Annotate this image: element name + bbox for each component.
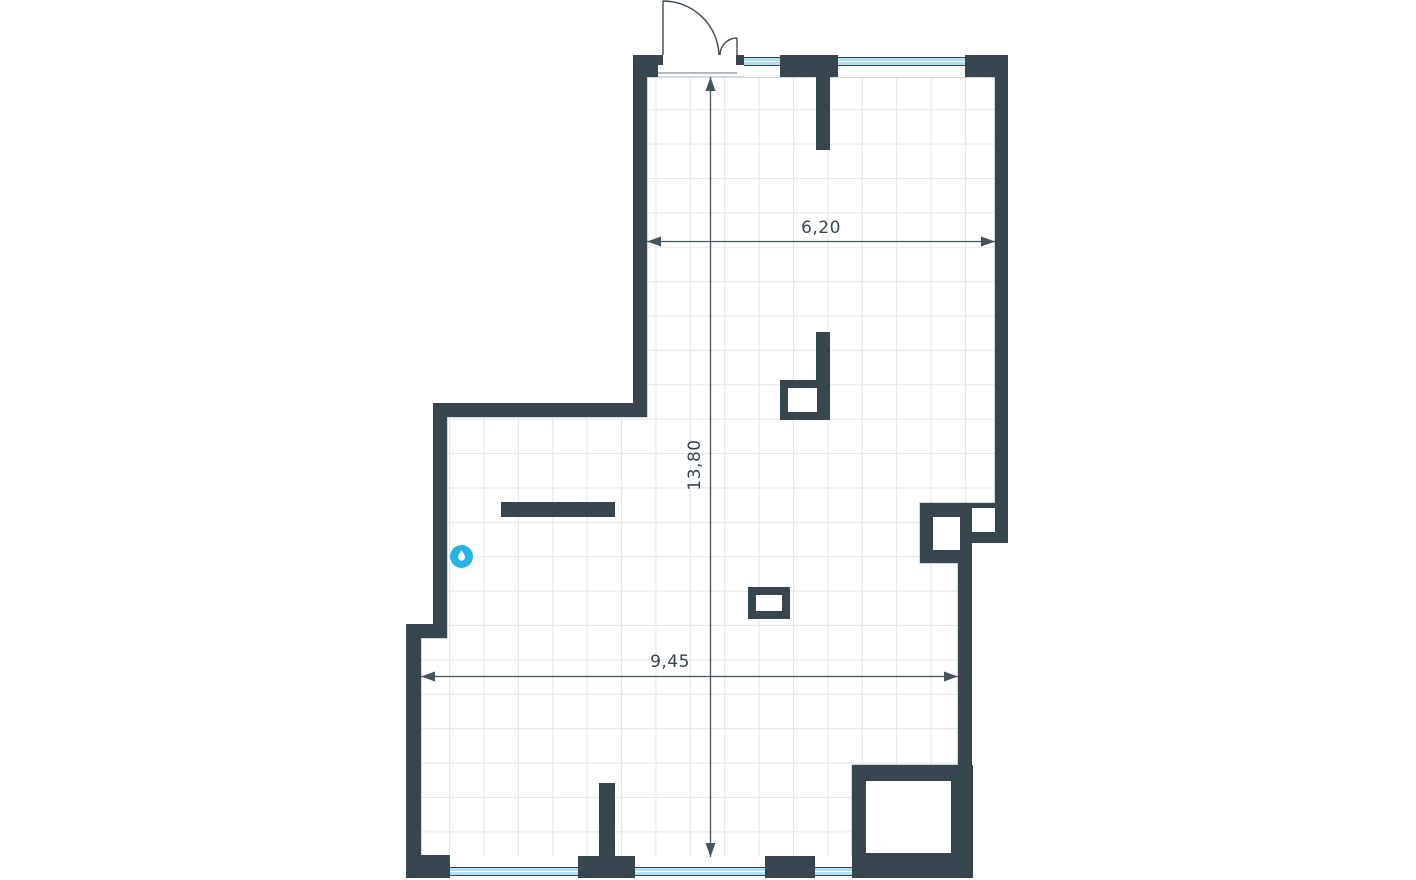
entrance-door: [663, 1, 737, 55]
annotations-layer: [0, 0, 1416, 880]
door-leaf-small-arc: [720, 38, 737, 55]
dimension-label-height: 13,80: [685, 415, 705, 515]
dimension-height: [706, 77, 716, 857]
dimension-bottom-width: [421, 672, 958, 682]
dimension-label-bottom-width: 9,45: [620, 652, 720, 672]
water-drop-icon: [450, 545, 473, 568]
floor-plan: 6,20 13,80 9,45: [0, 0, 1416, 880]
droplet-glyph: [455, 549, 468, 564]
dimension-top-width: [647, 237, 995, 247]
door-leaf-large-arc: [663, 1, 719, 55]
dimension-label-top-width: 6,20: [771, 218, 871, 238]
